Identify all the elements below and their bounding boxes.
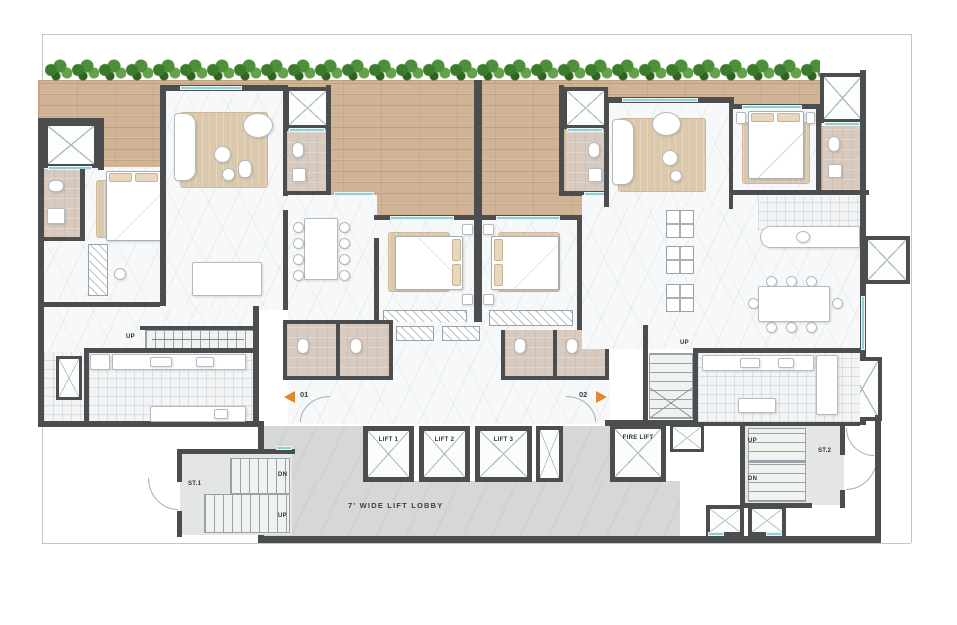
toilet-powder-right-b [566, 338, 578, 354]
wall [283, 320, 287, 380]
lift-3: LIFT 3 [475, 426, 532, 482]
wall [501, 376, 609, 380]
st1-dn-label: DN [278, 472, 287, 478]
boundary-line-top [42, 34, 911, 35]
wall [80, 169, 85, 241]
wall [326, 85, 331, 195]
floor-plan: UP LIFT 1 LIFT 2 LIFT 3 FIRE LIFT [0, 0, 957, 625]
wall [643, 325, 648, 422]
window-hall-02 [584, 192, 606, 196]
wall [474, 80, 482, 330]
kitchen-fridge [90, 354, 110, 370]
lobby-label: 7' WIDE LIFT LOBBY [348, 501, 443, 510]
armchair-living-01 [243, 113, 273, 138]
sink-mid-left [292, 168, 306, 182]
dining-chair [339, 222, 350, 233]
stair-direction-line [152, 339, 244, 340]
kitchen-counter-top [112, 354, 246, 370]
sink-mid-right [588, 168, 602, 182]
shaft-mid-left [285, 87, 330, 129]
kitchen02-counter-side [816, 355, 838, 415]
bedside-table [483, 294, 494, 305]
st2-flight-lower [748, 462, 806, 502]
unit2-number: 02 [579, 390, 587, 399]
dining-chair [806, 322, 817, 333]
door-arc-st2 [846, 455, 878, 490]
boundary-line-right [911, 34, 912, 543]
window-living-01 [180, 86, 242, 90]
pillow [751, 113, 774, 122]
shelf-unit [666, 246, 694, 274]
door-arc-service [846, 428, 874, 456]
pouf [214, 146, 231, 163]
room-bath-tl [44, 169, 84, 239]
wall [44, 237, 82, 241]
st1-up-label: UP [278, 513, 287, 519]
closet-core-right [442, 326, 480, 341]
stair-cross-02 [650, 388, 692, 418]
kitchen-sink [150, 357, 172, 367]
window-bedroom2-right [496, 216, 560, 220]
wall [177, 511, 182, 537]
pouf [670, 170, 682, 182]
kitchen02-island [738, 398, 776, 413]
wall [559, 85, 564, 195]
wall [860, 70, 866, 195]
unit1-entry-arrow-icon [284, 391, 295, 403]
door-arc-st1 [148, 478, 178, 510]
window-shaft-mid-left [289, 128, 325, 132]
toilet-mid-left [292, 142, 304, 158]
shaft-tr [820, 73, 865, 123]
kitchen-counter-bottom [150, 406, 246, 422]
pillow [494, 239, 503, 261]
st2-dn-label: DN [748, 476, 757, 482]
sink-tl [47, 208, 65, 224]
lift-2: LIFT 2 [419, 426, 470, 482]
armchair-living-02 [652, 112, 681, 136]
st2-label: ST.2 [818, 448, 831, 454]
wall [875, 415, 881, 543]
dining-chair [766, 322, 777, 333]
wall [258, 536, 878, 543]
room-bath-tr [822, 126, 862, 190]
window-corridor-01 [334, 192, 374, 196]
pouf [222, 168, 235, 181]
internal-stair-01 [145, 330, 257, 350]
lift-lobby-floor-main [258, 481, 680, 543]
wall [698, 348, 860, 353]
wall [740, 421, 745, 507]
lift-1-label: LIFT 1 [368, 437, 409, 443]
lift-3-label: LIFT 3 [480, 437, 527, 443]
st2-flight-upper [748, 428, 806, 462]
kitchen-appliance [214, 409, 228, 419]
breakfast-counter-02 [760, 226, 860, 248]
pillow [452, 264, 461, 286]
breakfast-sink [796, 231, 810, 243]
dining-chair [832, 298, 843, 309]
dining-table-01 [304, 218, 338, 280]
kitchen-hob [196, 357, 214, 367]
window-right-wall [861, 296, 865, 350]
pillow [135, 173, 158, 182]
toilet-tl [48, 180, 64, 192]
stair-up-label: UP [126, 334, 135, 340]
bedside-table [736, 112, 746, 124]
window-shaft-tl [48, 166, 92, 170]
room-bath-mid-right [565, 131, 606, 193]
sofa-living-01 [174, 113, 196, 181]
dining-chair [339, 254, 350, 265]
wall [98, 118, 104, 170]
hedge-row [45, 57, 820, 85]
st2-up-label: UP [748, 438, 757, 444]
window-shaft-mid-right [567, 128, 603, 132]
toilet-mid-right [588, 142, 600, 158]
side-table [238, 160, 252, 178]
shaft-right-upper [864, 236, 910, 284]
wall [140, 326, 258, 330]
lift-1: LIFT 1 [363, 426, 414, 482]
breakfast-floor-02 [758, 196, 860, 230]
wardrobe-bedroom2-right [489, 310, 573, 326]
room-bath-mid-left [287, 131, 328, 193]
pillow [494, 264, 503, 286]
toilet-powder-right-a [514, 338, 526, 354]
closet-core-left [396, 326, 434, 341]
window-bedroom-tr [742, 105, 802, 109]
wall [840, 490, 845, 508]
fire-lift-label: FIRE LIFT [615, 435, 661, 441]
st1-label: ST.1 [188, 481, 201, 487]
bedside-table [806, 112, 815, 124]
wall [160, 85, 166, 306]
dining-chair [293, 238, 304, 249]
pillow [777, 113, 800, 122]
dining-table-02 [758, 286, 830, 322]
bedside-table [462, 294, 473, 305]
wall [389, 320, 393, 380]
wall [38, 118, 104, 123]
shaft-mid-right [563, 87, 608, 129]
fire-lift: FIRE LIFT [610, 424, 666, 482]
wall [84, 348, 258, 353]
pillow [109, 173, 132, 182]
bedside-table [483, 224, 494, 235]
room-hall-02 [582, 195, 733, 349]
dining-chair [293, 254, 304, 265]
wall [604, 97, 609, 207]
bedside-table [462, 224, 473, 235]
boundary-line-bottom [42, 543, 911, 544]
wall [336, 320, 340, 376]
pouf [662, 150, 678, 166]
duct-lift-row [536, 426, 563, 482]
dresser-stool [114, 268, 126, 280]
dining-chair [293, 270, 304, 281]
wall [253, 306, 259, 426]
duct-east [670, 424, 704, 452]
sofa-living-02 [612, 119, 634, 185]
dining-chair [339, 238, 350, 249]
sink-tr [828, 164, 842, 178]
desk-01 [192, 262, 262, 296]
wall [283, 376, 393, 380]
lift-2-label: LIFT 2 [424, 437, 465, 443]
wall [840, 421, 845, 455]
lift-lobby-floor-east [563, 426, 610, 483]
unit2-entry-arrow-icon [596, 391, 607, 403]
shelf-unit [666, 284, 694, 312]
window-living-02 [622, 98, 698, 102]
window-st1 [276, 446, 292, 450]
pillow [452, 239, 461, 261]
dining-chair [293, 222, 304, 233]
dining-chair [339, 270, 350, 281]
toilet-tr [828, 136, 840, 152]
window-bedroom2-left [390, 216, 454, 220]
wardrobe-bedroom-tl [88, 244, 108, 296]
dining-chair [786, 322, 797, 333]
shelf-unit [666, 210, 694, 238]
wall [374, 238, 379, 330]
shaft-tl [44, 122, 98, 168]
toilet-powder-left-b [350, 338, 362, 354]
kitchen02-hob [778, 358, 794, 368]
window-shaft-tr [824, 122, 860, 126]
stair-up-label-02: UP [680, 340, 689, 346]
kitchen02-sink [740, 358, 760, 368]
toilet-powder-left-a [297, 338, 309, 354]
duct-kitchen-01 [56, 356, 82, 400]
wall [84, 348, 89, 426]
unit1-number: 01 [300, 390, 308, 399]
